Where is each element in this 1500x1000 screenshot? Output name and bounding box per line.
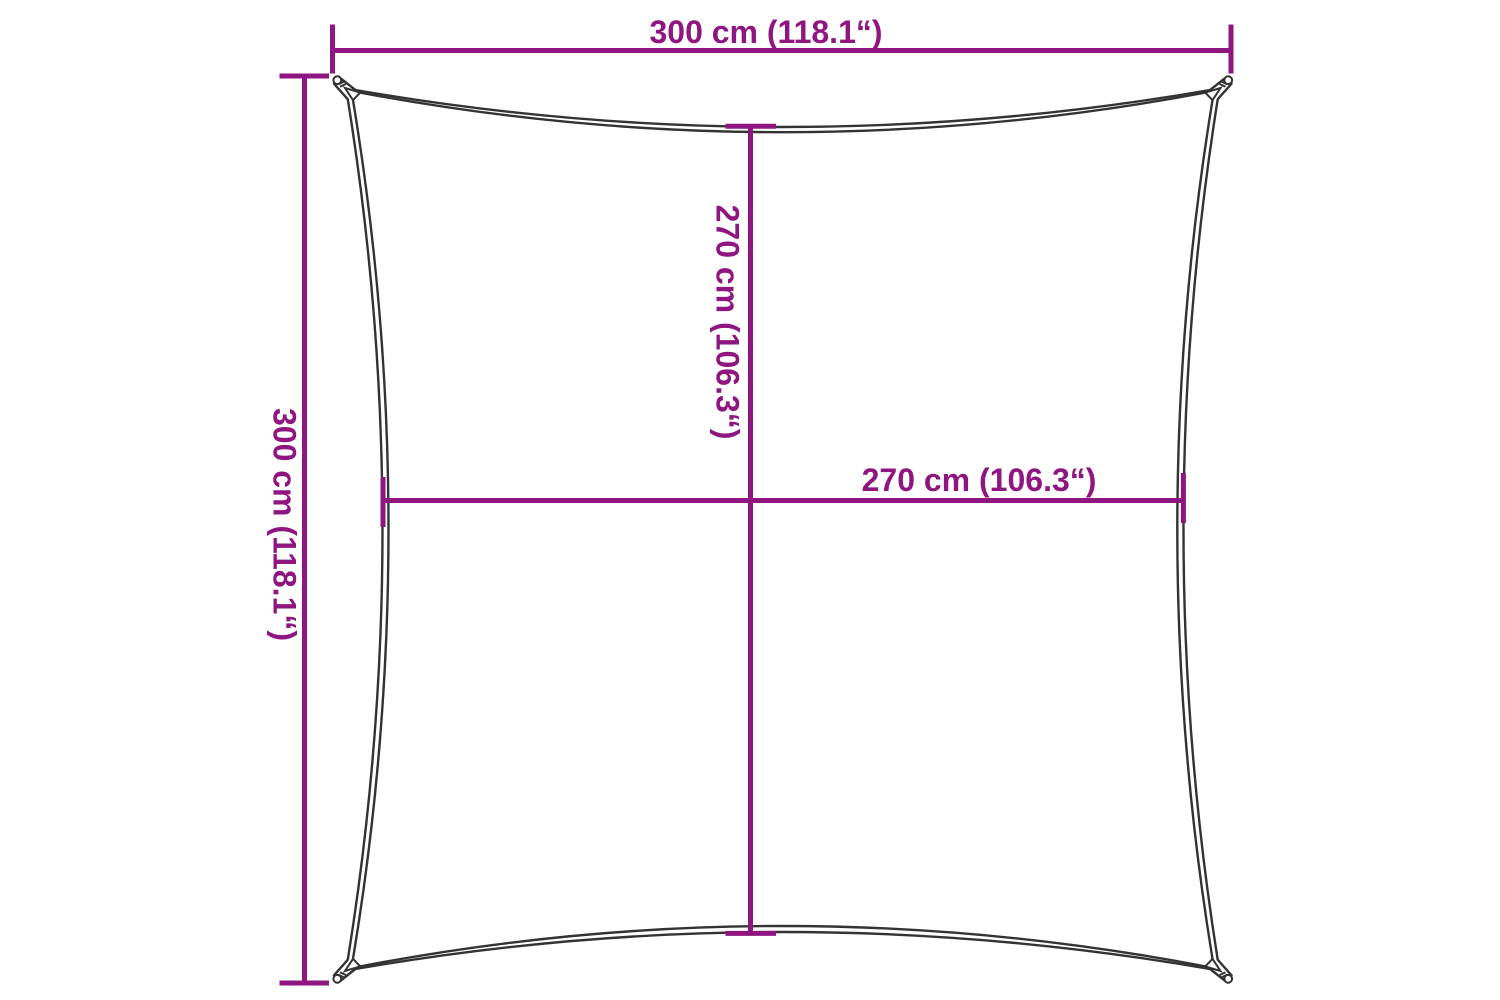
svg-text:300 cm (118.1“): 300 cm (118.1“) [649,14,882,50]
svg-text:300 cm (118.1“): 300 cm (118.1“) [267,408,303,641]
svg-text:270 cm (106.3“): 270 cm (106.3“) [862,462,1097,498]
svg-text:270 cm (106.3“): 270 cm (106.3“) [710,205,746,440]
